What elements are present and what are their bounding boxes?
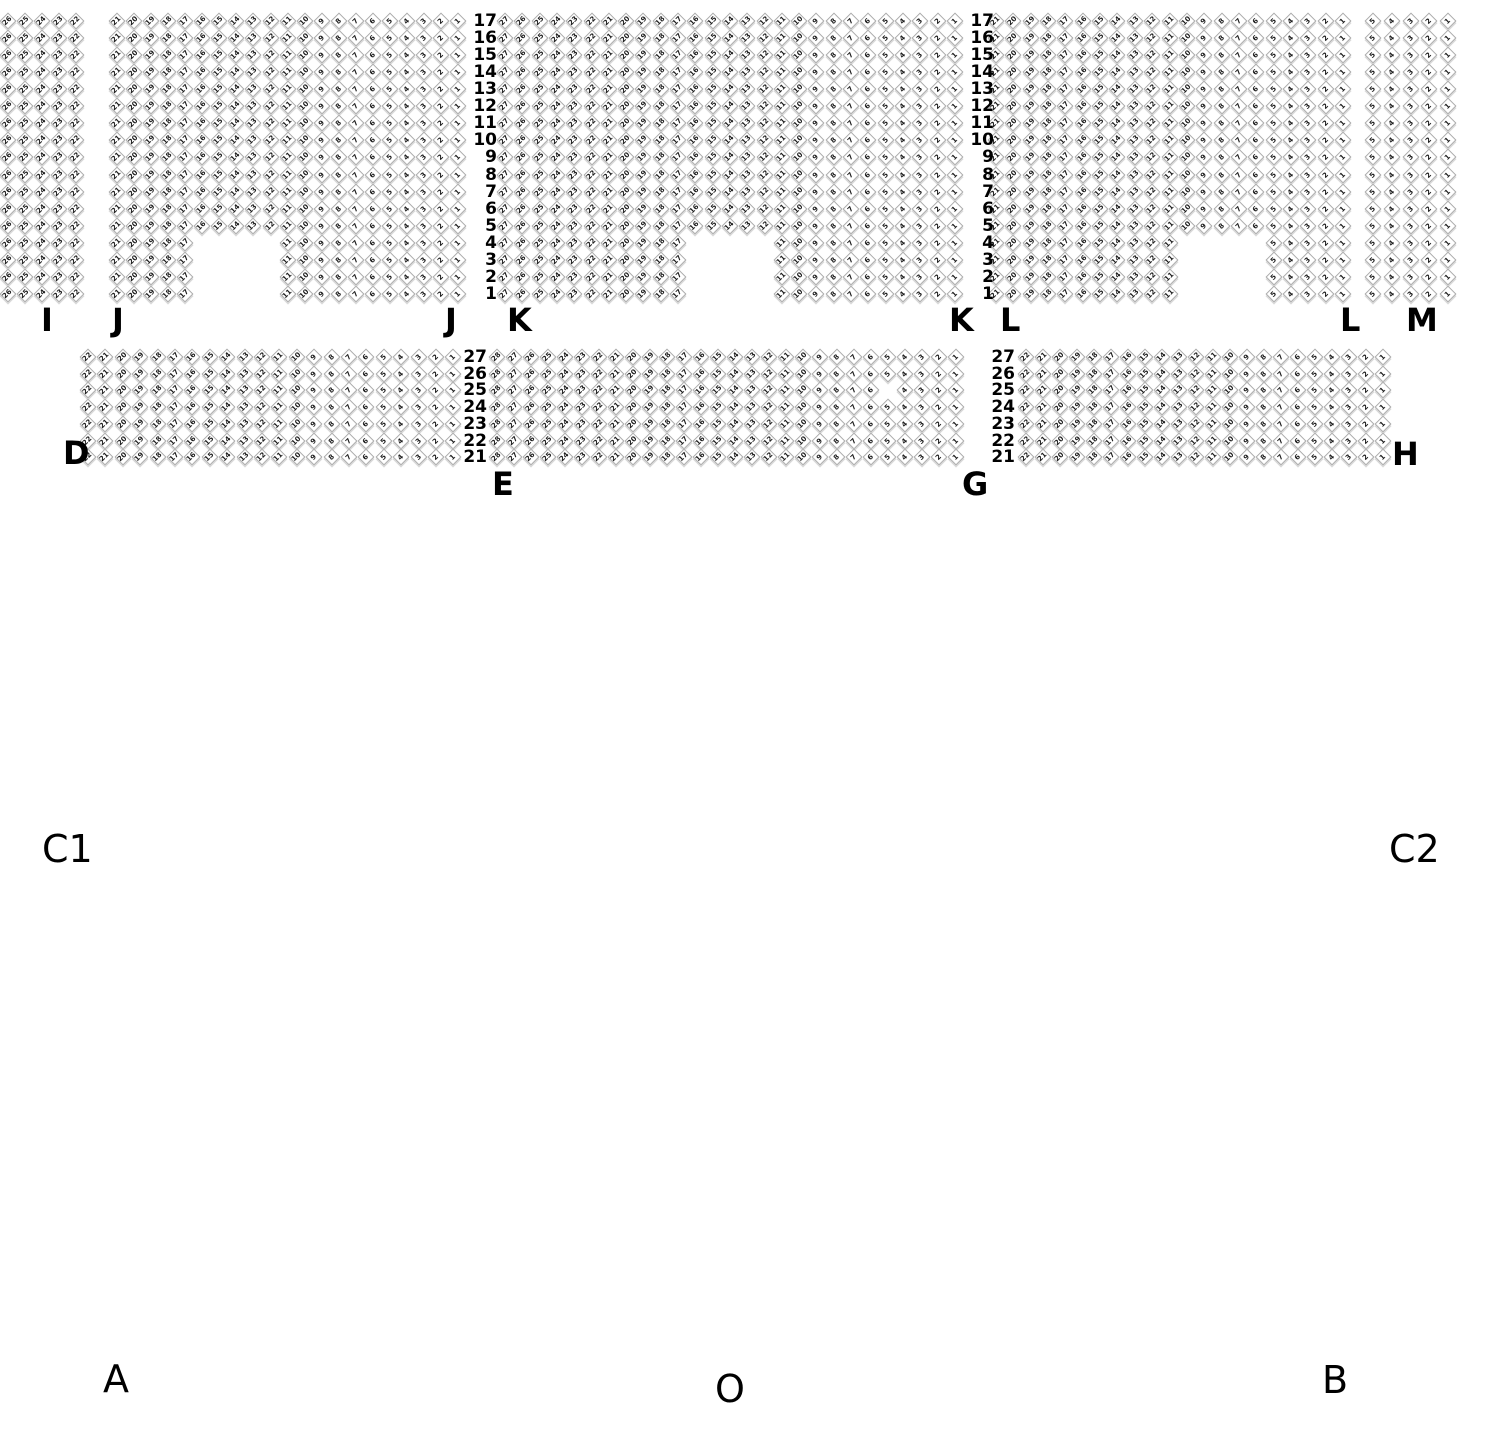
seat[interactable]: 12 — [254, 349, 270, 365]
seat[interactable]: 20 — [115, 433, 131, 449]
seat[interactable]: 4 — [1384, 235, 1400, 251]
seat[interactable]: 3 — [1403, 218, 1419, 234]
seat[interactable]: 23 — [574, 349, 590, 365]
seat[interactable]: 15 — [710, 449, 726, 465]
seat[interactable]: 17 — [670, 81, 686, 97]
seat[interactable]: 4 — [1384, 30, 1400, 46]
seat[interactable]: 26 — [514, 115, 530, 131]
seat[interactable]: 1 — [445, 366, 461, 382]
seat[interactable]: 11 — [271, 449, 287, 465]
seat[interactable]: 9 — [314, 13, 330, 29]
seat[interactable]: 3 — [416, 115, 432, 131]
seat[interactable]: 23 — [566, 98, 582, 114]
seat[interactable]: 7 — [846, 416, 862, 432]
seat[interactable]: 2 — [433, 269, 449, 285]
seat[interactable]: 5 — [382, 64, 398, 80]
seat[interactable]: 16 — [184, 416, 200, 432]
seat[interactable]: 15 — [1092, 149, 1108, 165]
seat[interactable]: 18 — [160, 201, 176, 217]
seat[interactable]: 3 — [912, 235, 928, 251]
seat[interactable]: 21 — [97, 366, 113, 382]
seat[interactable]: 10 — [297, 235, 313, 251]
seat[interactable]: 22 — [584, 47, 600, 63]
seat[interactable]: 12 — [761, 382, 777, 398]
seat[interactable]: 28 — [489, 416, 505, 432]
seat[interactable]: 22 — [80, 416, 96, 432]
seat[interactable]: 26 — [514, 286, 530, 302]
seat[interactable]: 3 — [912, 286, 928, 302]
seat[interactable]: 2 — [1421, 286, 1437, 302]
seat[interactable]: 7 — [1231, 64, 1247, 80]
seat[interactable]: 19 — [143, 269, 159, 285]
seat[interactable]: 7 — [843, 184, 859, 200]
seat[interactable]: 14 — [228, 30, 244, 46]
seat[interactable]: 28 — [489, 349, 505, 365]
seat[interactable]: 7 — [348, 167, 364, 183]
seat[interactable]: 4 — [1384, 184, 1400, 200]
seat[interactable]: 8 — [826, 167, 842, 183]
seat[interactable]: 24 — [549, 184, 565, 200]
seat[interactable]: 13 — [739, 218, 755, 234]
seat[interactable]: 2 — [1318, 201, 1334, 217]
seat[interactable]: 6 — [358, 382, 374, 398]
seat[interactable]: 12 — [263, 30, 279, 46]
seat[interactable]: 22 — [68, 184, 84, 200]
seat[interactable]: 3 — [912, 201, 928, 217]
seat[interactable]: 17 — [670, 132, 686, 148]
seat[interactable]: 5 — [1365, 13, 1381, 29]
seat[interactable]: 20 — [618, 218, 634, 234]
seat[interactable]: 22 — [80, 399, 96, 415]
seat[interactable]: 1 — [445, 349, 461, 365]
seat[interactable]: 19 — [143, 13, 159, 29]
seat[interactable]: 16 — [693, 366, 709, 382]
seat[interactable]: 11 — [271, 366, 287, 382]
seat[interactable]: 19 — [635, 30, 651, 46]
seat[interactable]: 8 — [826, 13, 842, 29]
seat[interactable]: 20 — [126, 149, 142, 165]
seat[interactable]: 17 — [167, 433, 183, 449]
seat[interactable]: 20 — [126, 30, 142, 46]
seat[interactable]: 23 — [51, 30, 67, 46]
seat[interactable]: 21 — [601, 47, 617, 63]
seat[interactable]: 15 — [1092, 47, 1108, 63]
seat[interactable]: 9 — [808, 81, 824, 97]
seat[interactable]: 26 — [514, 149, 530, 165]
seat[interactable]: 10 — [791, 30, 807, 46]
seat[interactable]: 12 — [263, 149, 279, 165]
seat[interactable]: 20 — [618, 184, 634, 200]
seat[interactable]: 6 — [365, 286, 381, 302]
seat[interactable]: 15 — [1092, 184, 1108, 200]
seat[interactable]: 17 — [177, 235, 193, 251]
seat[interactable]: 4 — [895, 64, 911, 80]
seat[interactable]: 18 — [653, 64, 669, 80]
seat[interactable]: 4 — [399, 201, 415, 217]
seat[interactable]: 8 — [826, 30, 842, 46]
seat[interactable]: 7 — [1273, 349, 1289, 365]
seat[interactable]: 14 — [727, 449, 743, 465]
seat[interactable]: 2 — [930, 218, 946, 234]
seat[interactable]: 21 — [97, 449, 113, 465]
seat[interactable]: 15 — [202, 366, 218, 382]
seat[interactable]: 4 — [1384, 81, 1400, 97]
seat[interactable]: 16 — [687, 64, 703, 80]
seat[interactable]: 11 — [1162, 252, 1178, 268]
seat[interactable]: 8 — [826, 235, 842, 251]
seat[interactable]: 5 — [1365, 98, 1381, 114]
seat[interactable]: 9 — [1196, 149, 1212, 165]
seat[interactable]: 24 — [34, 115, 50, 131]
seat[interactable]: 26 — [0, 149, 16, 165]
seat[interactable]: 15 — [202, 349, 218, 365]
seat[interactable]: 7 — [348, 252, 364, 268]
seat[interactable]: 9 — [808, 98, 824, 114]
seat[interactable]: 3 — [914, 449, 930, 465]
seat[interactable]: 15 — [211, 98, 227, 114]
seat[interactable]: 14 — [1109, 98, 1125, 114]
seat[interactable]: 15 — [202, 399, 218, 415]
seat[interactable]: 12 — [263, 132, 279, 148]
seat[interactable]: 5 — [878, 81, 894, 97]
seat[interactable]: 6 — [365, 64, 381, 80]
seat[interactable]: 26 — [523, 433, 539, 449]
seat[interactable]: 5 — [880, 433, 896, 449]
seat[interactable]: 2 — [1421, 149, 1437, 165]
seat[interactable]: 1 — [450, 47, 466, 63]
seat[interactable]: 6 — [365, 30, 381, 46]
seat[interactable]: 24 — [34, 13, 50, 29]
seat[interactable]: 3 — [1403, 64, 1419, 80]
seat[interactable]: 16 — [687, 167, 703, 183]
seat[interactable]: 17 — [1103, 366, 1119, 382]
seat[interactable]: 22 — [68, 218, 84, 234]
seat[interactable]: 4 — [1384, 115, 1400, 131]
seat[interactable]: 13 — [1171, 349, 1187, 365]
seat[interactable]: 19 — [635, 252, 651, 268]
seat[interactable]: 2 — [1318, 81, 1334, 97]
seat[interactable]: 2 — [1421, 81, 1437, 97]
seat[interactable]: 23 — [574, 416, 590, 432]
seat[interactable]: 11 — [1162, 64, 1178, 80]
seat[interactable]: 6 — [1290, 349, 1306, 365]
seat[interactable]: 22 — [584, 252, 600, 268]
seat[interactable]: 3 — [1403, 81, 1419, 97]
seat[interactable]: 16 — [693, 433, 709, 449]
seat[interactable]: 17 — [177, 30, 193, 46]
seat[interactable]: 16 — [1075, 13, 1091, 29]
seat[interactable]: 15 — [211, 218, 227, 234]
seat[interactable]: 17 — [167, 399, 183, 415]
seat[interactable]: 2 — [930, 115, 946, 131]
seat[interactable]: 8 — [1214, 98, 1230, 114]
seat[interactable]: 22 — [584, 81, 600, 97]
seat[interactable]: 21 — [608, 416, 624, 432]
seat[interactable]: 5 — [382, 47, 398, 63]
seat[interactable]: 17 — [670, 13, 686, 29]
seat[interactable]: 14 — [1109, 115, 1125, 131]
seat[interactable]: 22 — [591, 399, 607, 415]
seat[interactable]: 22 — [68, 115, 84, 131]
seat[interactable]: 18 — [160, 286, 176, 302]
seat[interactable]: 13 — [1127, 115, 1143, 131]
seat[interactable]: 18 — [659, 416, 675, 432]
seat[interactable]: 25 — [532, 184, 548, 200]
seat[interactable]: 7 — [843, 47, 859, 63]
seat[interactable]: 11 — [778, 382, 794, 398]
seat[interactable]: 2 — [433, 218, 449, 234]
seat[interactable]: 2 — [1421, 47, 1437, 63]
seat[interactable]: 14 — [228, 64, 244, 80]
seat[interactable]: 18 — [653, 184, 669, 200]
seat[interactable]: 4 — [897, 366, 913, 382]
seat[interactable]: 1 — [450, 184, 466, 200]
seat[interactable]: 5 — [1365, 269, 1381, 285]
seat[interactable]: 26 — [0, 252, 16, 268]
seat[interactable]: 11 — [1162, 115, 1178, 131]
seat[interactable]: 26 — [514, 184, 530, 200]
seat[interactable]: 15 — [710, 399, 726, 415]
seat[interactable]: 9 — [1196, 81, 1212, 97]
seat[interactable]: 23 — [566, 235, 582, 251]
seat[interactable]: 5 — [1365, 132, 1381, 148]
seat[interactable]: 7 — [348, 30, 364, 46]
seat[interactable]: 8 — [324, 366, 340, 382]
seat[interactable]: 17 — [1057, 132, 1073, 148]
seat[interactable]: 16 — [194, 81, 210, 97]
seat[interactable]: 19 — [143, 47, 159, 63]
seat[interactable]: 9 — [306, 449, 322, 465]
seat[interactable]: 13 — [245, 98, 261, 114]
seat[interactable]: 11 — [271, 399, 287, 415]
seat[interactable]: 5 — [878, 149, 894, 165]
seat[interactable]: 25 — [17, 269, 33, 285]
seat[interactable]: 4 — [1283, 81, 1299, 97]
seat[interactable]: 3 — [914, 349, 930, 365]
seat[interactable]: 5 — [382, 167, 398, 183]
seat[interactable]: 7 — [843, 132, 859, 148]
seat[interactable]: 12 — [1144, 13, 1160, 29]
seat[interactable]: 15 — [705, 64, 721, 80]
seat[interactable]: 25 — [17, 149, 33, 165]
seat[interactable]: 10 — [791, 149, 807, 165]
seat[interactable]: 8 — [826, 47, 842, 63]
seat[interactable]: 11 — [774, 235, 790, 251]
seat[interactable]: 22 — [68, 30, 84, 46]
seat[interactable]: 24 — [549, 167, 565, 183]
seat[interactable]: 23 — [566, 269, 582, 285]
seat[interactable]: 17 — [177, 115, 193, 131]
seat[interactable]: 1 — [1335, 167, 1351, 183]
seat[interactable]: 4 — [895, 201, 911, 217]
seat[interactable]: 2 — [1421, 218, 1437, 234]
seat[interactable]: 19 — [642, 416, 658, 432]
seat[interactable]: 6 — [365, 149, 381, 165]
seat[interactable]: 15 — [202, 433, 218, 449]
seat[interactable]: 2 — [433, 64, 449, 80]
seat[interactable]: 18 — [160, 252, 176, 268]
seat[interactable]: 10 — [297, 13, 313, 29]
seat[interactable]: 3 — [912, 269, 928, 285]
seat[interactable]: 1 — [947, 149, 963, 165]
seat[interactable]: 22 — [584, 235, 600, 251]
seat[interactable]: 2 — [1421, 269, 1437, 285]
seat[interactable]: 4 — [1384, 201, 1400, 217]
seat[interactable]: 4 — [1283, 47, 1299, 63]
seat[interactable]: 10 — [1179, 218, 1195, 234]
seat[interactable]: 2 — [1318, 235, 1334, 251]
seat[interactable]: 11 — [1162, 13, 1178, 29]
seat[interactable]: 10 — [1179, 30, 1195, 46]
seat[interactable]: 4 — [1283, 13, 1299, 29]
seat[interactable]: 20 — [1005, 286, 1021, 302]
seat[interactable]: 20 — [1005, 98, 1021, 114]
seat[interactable]: 19 — [132, 399, 148, 415]
seat[interactable]: 11 — [271, 382, 287, 398]
seat[interactable]: 12 — [757, 218, 773, 234]
seat[interactable]: 18 — [659, 349, 675, 365]
seat[interactable]: 3 — [411, 416, 427, 432]
seat[interactable]: 18 — [160, 64, 176, 80]
seat[interactable]: 15 — [202, 416, 218, 432]
seat[interactable]: 18 — [160, 115, 176, 131]
seat[interactable]: 14 — [722, 167, 738, 183]
seat[interactable]: 20 — [1052, 366, 1068, 382]
seat[interactable]: 13 — [1127, 167, 1143, 183]
seat[interactable]: 10 — [1179, 201, 1195, 217]
seat[interactable]: 14 — [727, 416, 743, 432]
seat[interactable]: 5 — [1365, 184, 1381, 200]
seat[interactable]: 6 — [365, 218, 381, 234]
seat[interactable]: 1 — [947, 115, 963, 131]
seat[interactable]: 2 — [433, 201, 449, 217]
seat[interactable]: 27 — [506, 416, 522, 432]
seat[interactable]: 12 — [761, 399, 777, 415]
seat[interactable]: 25 — [540, 449, 556, 465]
seat[interactable]: 17 — [670, 149, 686, 165]
seat[interactable]: 21 — [109, 184, 125, 200]
seat[interactable]: 13 — [1127, 252, 1143, 268]
seat[interactable]: 12 — [757, 47, 773, 63]
seat[interactable]: 4 — [1283, 286, 1299, 302]
seat[interactable]: 27 — [497, 98, 513, 114]
seat[interactable]: 8 — [1214, 149, 1230, 165]
seat[interactable]: 12 — [757, 149, 773, 165]
seat[interactable]: 4 — [393, 449, 409, 465]
seat[interactable]: 8 — [324, 349, 340, 365]
seat[interactable]: 6 — [365, 132, 381, 148]
seat[interactable]: 19 — [132, 349, 148, 365]
seat[interactable]: 21 — [109, 115, 125, 131]
seat[interactable]: 25 — [540, 399, 556, 415]
seat[interactable]: 25 — [17, 115, 33, 131]
seat[interactable]: 3 — [411, 382, 427, 398]
seat[interactable]: 5 — [382, 218, 398, 234]
seat[interactable]: 9 — [314, 149, 330, 165]
seat[interactable]: 17 — [670, 218, 686, 234]
seat[interactable]: 21 — [601, 64, 617, 80]
seat[interactable]: 22 — [584, 64, 600, 80]
seat[interactable]: 6 — [358, 449, 374, 465]
seat[interactable]: 16 — [184, 366, 200, 382]
seat[interactable]: 16 — [194, 167, 210, 183]
seat[interactable]: 16 — [1120, 366, 1136, 382]
seat[interactable]: 11 — [271, 416, 287, 432]
seat[interactable]: 1 — [1440, 30, 1456, 46]
seat[interactable]: 12 — [761, 366, 777, 382]
seat[interactable]: 19 — [143, 30, 159, 46]
seat[interactable]: 15 — [705, 167, 721, 183]
seat[interactable]: 1 — [948, 349, 964, 365]
seat[interactable]: 11 — [271, 433, 287, 449]
seat[interactable]: 12 — [263, 81, 279, 97]
seat[interactable]: 10 — [791, 218, 807, 234]
seat[interactable]: 2 — [1318, 218, 1334, 234]
seat[interactable]: 19 — [635, 81, 651, 97]
seat[interactable]: 23 — [566, 115, 582, 131]
seat[interactable]: 9 — [808, 13, 824, 29]
seat[interactable]: 26 — [523, 416, 539, 432]
seat[interactable]: 9 — [1196, 201, 1212, 217]
seat[interactable]: 22 — [80, 349, 96, 365]
seat[interactable]: 19 — [143, 218, 159, 234]
seat[interactable]: 26 — [523, 449, 539, 465]
seat[interactable]: 25 — [532, 30, 548, 46]
seat[interactable]: 9 — [314, 115, 330, 131]
seat[interactable]: 17 — [177, 132, 193, 148]
seat[interactable]: 13 — [739, 184, 755, 200]
seat[interactable]: 26 — [514, 218, 530, 234]
seat[interactable]: 3 — [1300, 167, 1316, 183]
seat[interactable]: 3 — [1403, 167, 1419, 183]
seat[interactable]: 26 — [0, 269, 16, 285]
seat[interactable]: 20 — [625, 366, 641, 382]
seat[interactable]: 1 — [1440, 252, 1456, 268]
seat[interactable]: 23 — [51, 167, 67, 183]
seat[interactable]: 17 — [177, 184, 193, 200]
seat[interactable]: 9 — [1196, 13, 1212, 29]
seat[interactable]: 20 — [1052, 349, 1068, 365]
seat[interactable]: 13 — [245, 132, 261, 148]
seat[interactable]: 7 — [1231, 218, 1247, 234]
seat[interactable]: 15 — [1092, 252, 1108, 268]
seat[interactable]: 1 — [450, 201, 466, 217]
seat[interactable]: 6 — [863, 416, 879, 432]
seat[interactable]: 4 — [1384, 252, 1400, 268]
seat[interactable]: 17 — [670, 98, 686, 114]
seat[interactable]: 4 — [1283, 252, 1299, 268]
seat[interactable]: 16 — [194, 184, 210, 200]
seat[interactable]: 5 — [1266, 30, 1282, 46]
seat[interactable]: 23 — [51, 47, 67, 63]
seat[interactable]: 21 — [109, 98, 125, 114]
seat[interactable]: 15 — [705, 149, 721, 165]
seat[interactable]: 5 — [1266, 252, 1282, 268]
seat[interactable]: 12 — [254, 416, 270, 432]
seat[interactable]: 4 — [895, 252, 911, 268]
seat[interactable]: 7 — [348, 98, 364, 114]
seat[interactable]: 2 — [930, 167, 946, 183]
seat[interactable]: 19 — [635, 218, 651, 234]
seat[interactable]: 25 — [532, 132, 548, 148]
seat[interactable]: 13 — [245, 218, 261, 234]
seat[interactable]: 11 — [280, 235, 296, 251]
seat[interactable]: 1 — [1335, 98, 1351, 114]
seat[interactable]: 24 — [549, 47, 565, 63]
seat[interactable]: 23 — [51, 252, 67, 268]
seat[interactable]: 18 — [659, 449, 675, 465]
seat[interactable]: 25 — [532, 81, 548, 97]
